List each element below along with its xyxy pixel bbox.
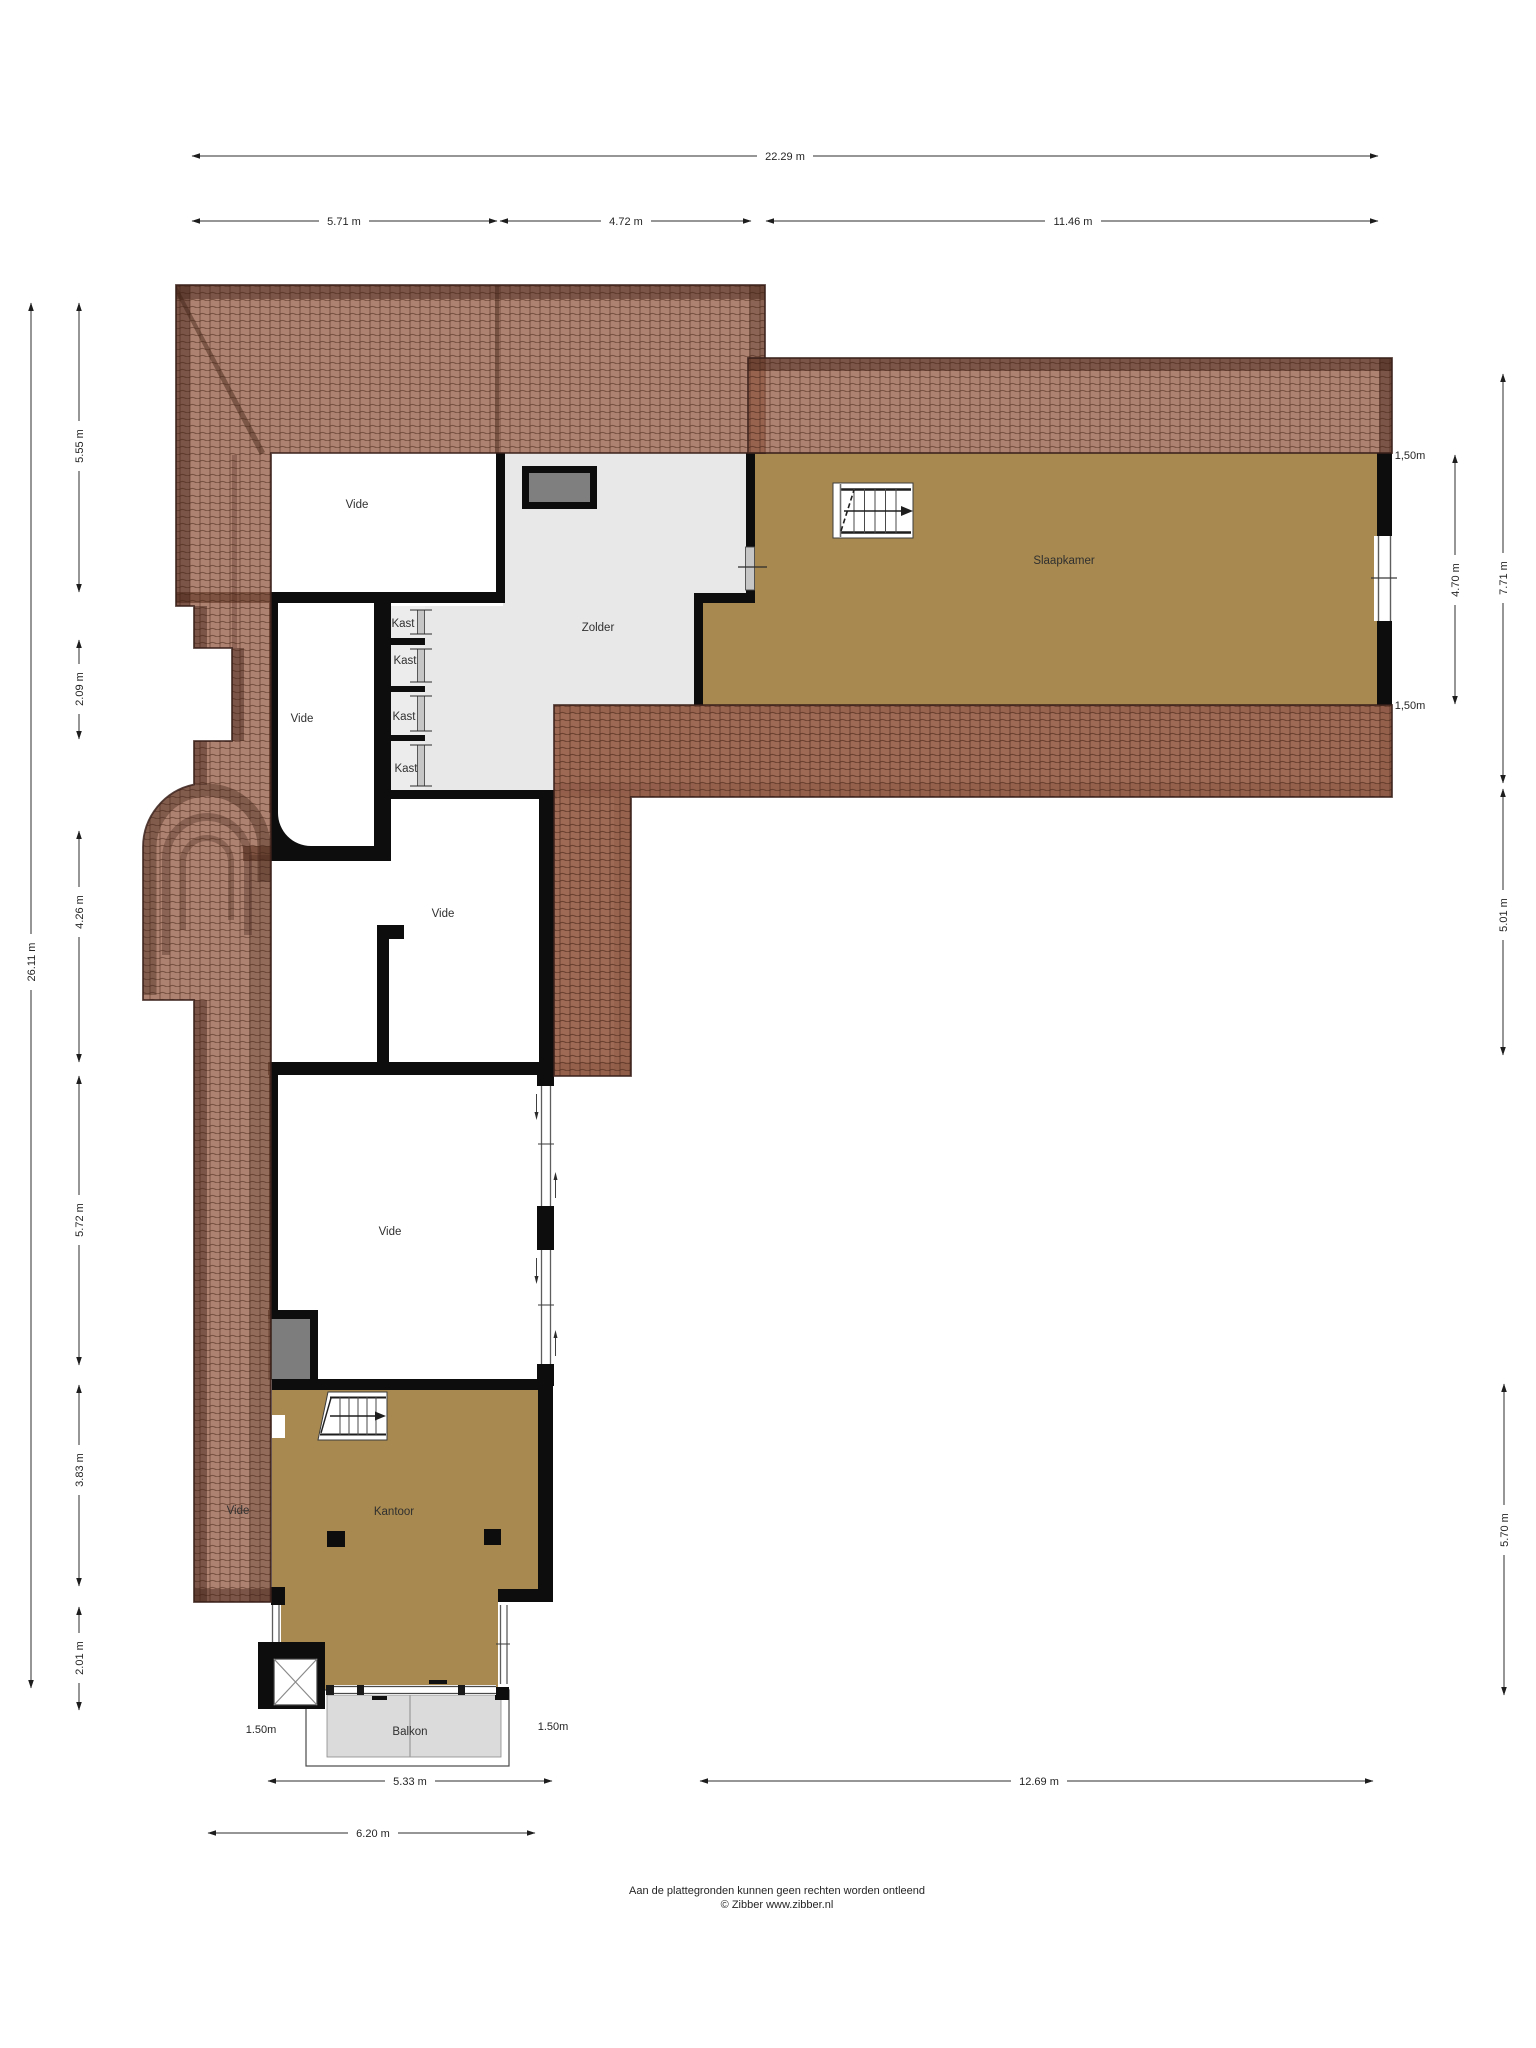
- svg-text:5.72 m: 5.72 m: [74, 1203, 86, 1237]
- svg-text:Kast: Kast: [392, 711, 416, 723]
- svg-text:© Zibber www.zibber.nl: © Zibber www.zibber.nl: [721, 1899, 834, 1911]
- svg-text:26.11 m: 26.11 m: [26, 943, 38, 982]
- svg-text:Aan de plattegronden kunnen ge: Aan de plattegronden kunnen geen rechten…: [629, 1885, 925, 1897]
- svg-text:Kast: Kast: [394, 763, 418, 775]
- svg-text:5.55 m: 5.55 m: [74, 429, 86, 463]
- svg-text:1.50m: 1.50m: [538, 1721, 569, 1733]
- svg-text:22.29 m: 22.29 m: [765, 151, 805, 163]
- svg-text:4.72 m: 4.72 m: [609, 216, 643, 228]
- svg-text:6.20 m: 6.20 m: [356, 1828, 390, 1840]
- svg-text:2.09 m: 2.09 m: [74, 672, 86, 706]
- svg-text:Vide: Vide: [346, 499, 369, 511]
- svg-text:Vide: Vide: [379, 1226, 402, 1238]
- svg-text:4.70 m: 4.70 m: [1450, 563, 1462, 597]
- svg-text:1,50m: 1,50m: [1395, 450, 1426, 462]
- svg-text:Kast: Kast: [393, 655, 417, 667]
- svg-text:5.70 m: 5.70 m: [1499, 1513, 1511, 1547]
- svg-text:11.46 m: 11.46 m: [1054, 216, 1093, 228]
- svg-text:Vide: Vide: [227, 1505, 250, 1517]
- svg-text:12.69 m: 12.69 m: [1019, 1776, 1059, 1788]
- svg-text:3.83 m: 3.83 m: [74, 1453, 86, 1487]
- svg-text:Balkon: Balkon: [392, 1726, 427, 1738]
- svg-text:1.50m: 1.50m: [246, 1724, 277, 1736]
- svg-text:5.01 m: 5.01 m: [1498, 898, 1510, 932]
- svg-text:Kast: Kast: [391, 618, 415, 630]
- svg-text:4.26 m: 4.26 m: [74, 895, 86, 929]
- svg-text:Zolder: Zolder: [582, 622, 615, 634]
- svg-text:Vide: Vide: [291, 713, 314, 725]
- svg-text:5.33 m: 5.33 m: [393, 1776, 427, 1788]
- svg-text:7.71 m: 7.71 m: [1498, 561, 1510, 595]
- svg-text:5.71 m: 5.71 m: [327, 216, 361, 228]
- svg-text:Slaapkamer: Slaapkamer: [1033, 555, 1095, 567]
- svg-text:2.01 m: 2.01 m: [74, 1641, 86, 1675]
- svg-text:Vide: Vide: [432, 908, 455, 920]
- svg-text:1,50m: 1,50m: [1395, 700, 1426, 712]
- svg-text:Kantoor: Kantoor: [374, 1506, 414, 1518]
